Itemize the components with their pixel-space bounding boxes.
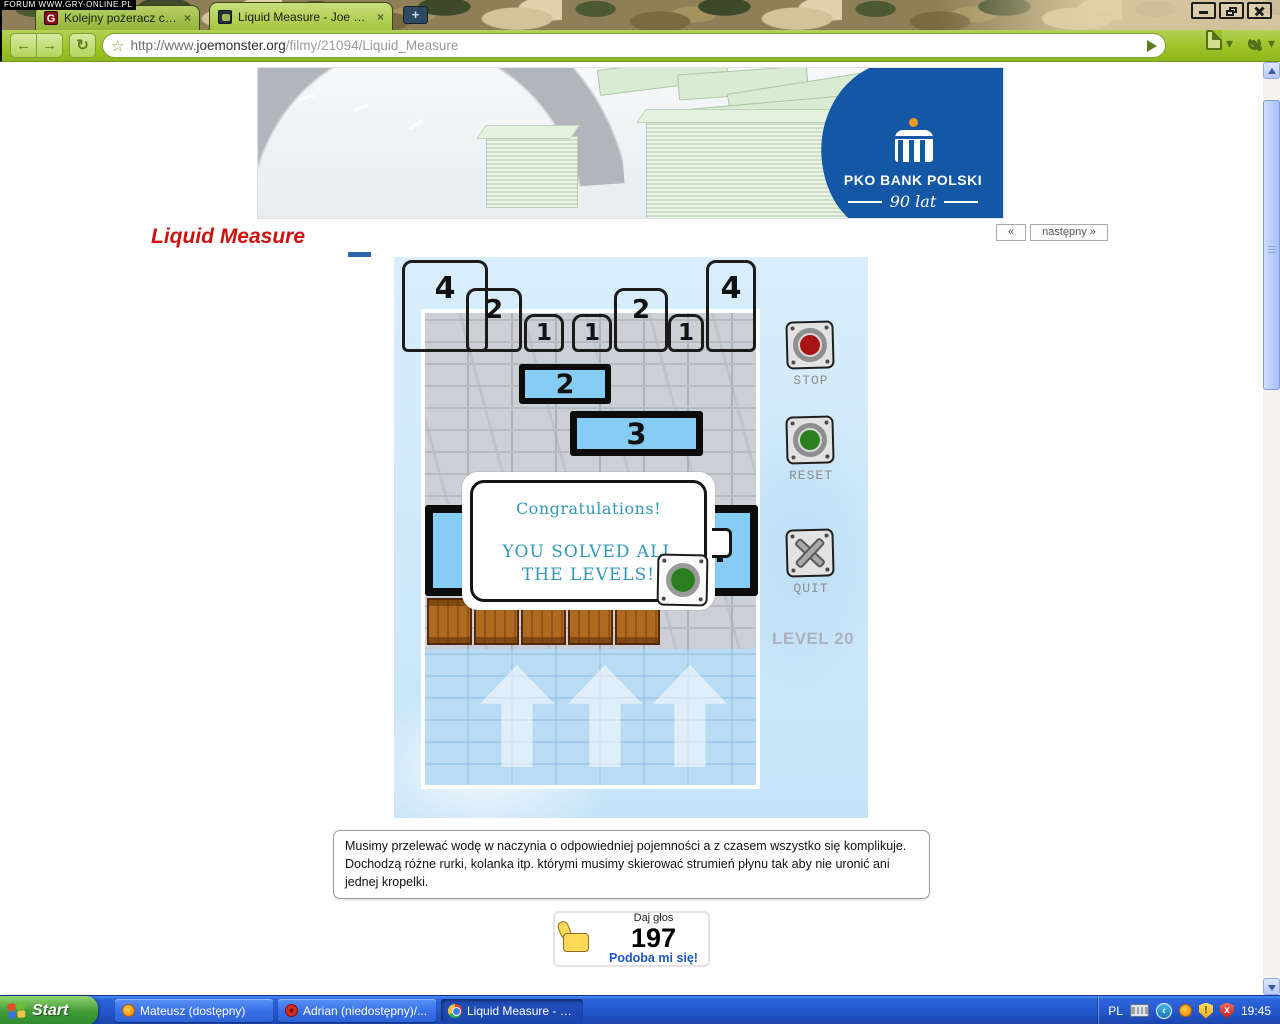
dialog-ok-button[interactable] xyxy=(657,554,709,607)
stop-button[interactable] xyxy=(785,320,834,369)
scroll-down-button[interactable] xyxy=(1263,978,1280,995)
system-tray: PL ‹ ! x 19:45 xyxy=(1098,996,1280,1024)
security-warning-icon[interactable]: ! xyxy=(1199,1003,1213,1019)
target-outline-4: 4 xyxy=(706,260,756,352)
address-bar[interactable]: ☆ http://www.joemonster.org/filmy/21094/… xyxy=(102,33,1166,58)
browser-titlebar: G Kolejny pożeracz czasu z j... × Liquid… xyxy=(0,0,1280,30)
tab-label: Kolejny pożeracz czasu z j... xyxy=(64,11,178,25)
pko-anniversary: 90 lat xyxy=(821,192,1004,211)
quit-label: QUIT xyxy=(766,581,856,596)
gg-available-icon xyxy=(122,1004,135,1017)
back-button[interactable]: ← xyxy=(10,33,37,58)
tank-3: 3 xyxy=(570,411,703,456)
target-outline-1: 1 xyxy=(668,314,704,352)
joemonster-favicon-icon xyxy=(218,10,232,24)
gg-busy-icon xyxy=(285,1004,298,1017)
bookmark-star-icon[interactable]: ☆ xyxy=(111,37,124,55)
reset-button[interactable] xyxy=(785,415,834,464)
up-arrow-icon xyxy=(653,665,727,767)
wooden-crate xyxy=(427,598,472,645)
url-text: http://www.joemonster.org/filmy/21094/Li… xyxy=(130,38,1141,53)
tank-2: 2 xyxy=(519,364,611,404)
windows-flag-icon xyxy=(7,1002,27,1020)
pko-banner-ad[interactable]: PKO BANK POLSKI 90 lat xyxy=(257,67,1004,219)
gry-online-favicon-icon: G xyxy=(44,11,58,25)
task-browser[interactable]: Liquid Measure - Joe ... xyxy=(441,999,583,1022)
lower-panel xyxy=(425,649,756,785)
forward-icon: → xyxy=(42,37,57,54)
scroll-up-icon xyxy=(1268,68,1276,74)
minimize-icon xyxy=(1199,11,1208,14)
game-canvas[interactable]: 2 3 4 4 2 1 1 2 1 4 Congratulations! YOU… xyxy=(394,257,868,818)
pko-logo-block: PKO BANK POLSKI 90 lat xyxy=(821,68,1004,219)
tray-collapse-icon[interactable]: ‹ xyxy=(1156,1003,1172,1019)
tab-liquid-measure[interactable]: Liquid Measure - Joe Monster × xyxy=(209,2,393,30)
reload-button[interactable]: ↻ xyxy=(69,33,96,58)
taskbar: Start Mateusz (dostępny) Adrian (niedost… xyxy=(0,995,1280,1024)
vote-count: 197 xyxy=(599,924,708,952)
chrome-icon xyxy=(448,1004,462,1018)
go-icon[interactable] xyxy=(1147,40,1157,52)
up-arrow-icon xyxy=(480,665,554,767)
wrench-icon[interactable] xyxy=(1248,37,1263,52)
security-error-icon[interactable]: x xyxy=(1220,1003,1234,1019)
new-tab-button[interactable]: + xyxy=(403,6,428,24)
target-outline-2: 2 xyxy=(466,288,522,352)
start-label: Start xyxy=(32,1002,68,1020)
pko-brand-text: PKO BANK POLSKI xyxy=(821,172,1004,188)
restore-button[interactable] xyxy=(1219,2,1244,19)
minimize-button[interactable] xyxy=(1191,2,1216,19)
money-stack xyxy=(646,120,846,219)
dialog-line1: Congratulations! xyxy=(473,499,704,518)
page-content: PKO BANK POLSKI 90 lat Liquid Measure « … xyxy=(0,62,1280,995)
start-button[interactable]: Start xyxy=(0,996,98,1024)
keyboard-icon[interactable] xyxy=(1130,1004,1149,1017)
game-description: Musimy przelewać wodę w naczynia o odpow… xyxy=(333,830,930,899)
gg-tray-icon[interactable] xyxy=(1179,1004,1192,1017)
page-menu-caret-icon[interactable]: ▾ xyxy=(1226,35,1233,52)
task-mateusz[interactable]: Mateusz (dostępny) xyxy=(115,999,273,1022)
level-indicator: LEVEL 20 xyxy=(772,629,862,649)
target-outline-1: 1 xyxy=(524,314,564,352)
like-link[interactable]: Podoba mi się! xyxy=(599,952,708,965)
stop-label: STOP xyxy=(766,373,856,388)
up-arrow-icon xyxy=(568,665,642,767)
vertical-scrollbar[interactable] xyxy=(1263,62,1280,995)
reset-label: RESET xyxy=(766,468,856,483)
target-outline-2: 2 xyxy=(614,288,668,352)
wrench-menu-caret-icon[interactable]: ▾ xyxy=(1268,35,1275,52)
task-adrian[interactable]: Adrian (niedostępny)/... xyxy=(278,999,436,1022)
scroll-up-button[interactable] xyxy=(1263,62,1280,79)
tab-close-icon[interactable]: × xyxy=(184,11,191,25)
browser-toolbar: ← → ↻ ☆ http://www.joemonster.org/filmy/… xyxy=(0,30,1280,62)
forward-button[interactable]: → xyxy=(36,33,63,58)
page-menu-icon[interactable] xyxy=(1206,30,1222,50)
pko-logo-icon xyxy=(895,130,933,162)
money-stack xyxy=(486,136,578,208)
tab-close-icon[interactable]: × xyxy=(377,10,384,24)
next-button[interactable]: następny » xyxy=(1030,224,1108,241)
reload-icon: ↻ xyxy=(76,37,89,54)
vote-widget[interactable]: Daj głos 197 Podoba mi się! xyxy=(553,911,710,967)
close-button[interactable] xyxy=(1247,2,1272,19)
language-indicator[interactable]: PL xyxy=(1108,1004,1123,1018)
back-icon: ← xyxy=(16,37,31,54)
scrollbar-thumb[interactable] xyxy=(1263,100,1280,390)
thumbs-up-icon[interactable] xyxy=(555,919,599,959)
prev-button[interactable]: « xyxy=(996,224,1026,241)
scroll-down-icon xyxy=(1268,985,1276,991)
clock: 19:45 xyxy=(1241,1004,1271,1018)
loader-dash xyxy=(348,252,371,257)
tab-label: Liquid Measure - Joe Monster xyxy=(238,10,371,24)
page-title: Liquid Measure xyxy=(151,225,305,249)
pko-dot-icon xyxy=(909,118,918,127)
quit-button[interactable] xyxy=(785,528,834,577)
forum-watermark: FORUM WWW.GRY-ONLINE.PL xyxy=(0,0,136,10)
target-outline-1: 1 xyxy=(572,314,612,352)
